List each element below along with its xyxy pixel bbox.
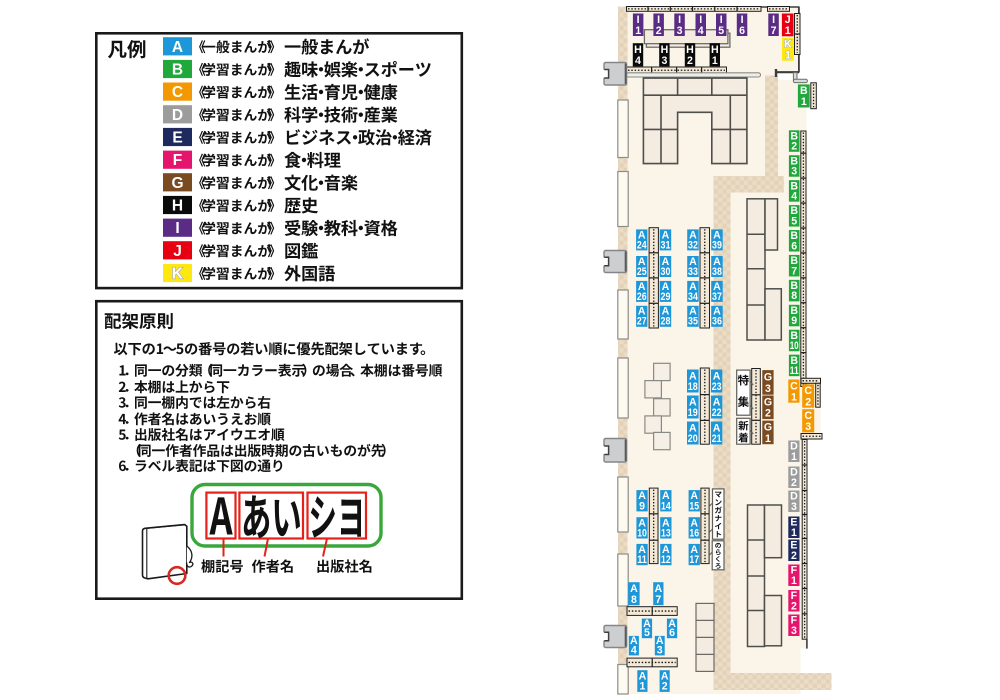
svg-text:36: 36	[712, 316, 722, 328]
svg-text:A: A	[172, 39, 183, 56]
svg-text:21: 21	[712, 433, 722, 445]
svg-text:1: 1	[785, 50, 791, 62]
svg-text:5: 5	[791, 215, 797, 227]
svg-text:4: 4	[635, 55, 641, 67]
svg-text:17: 17	[689, 554, 699, 566]
svg-text:34: 34	[688, 291, 698, 303]
svg-text:2: 2	[791, 477, 797, 489]
svg-text:29: 29	[661, 291, 671, 303]
svg-text:6: 6	[791, 240, 797, 252]
svg-text:30: 30	[661, 266, 671, 278]
svg-text:8: 8	[631, 594, 637, 606]
svg-text:F: F	[173, 152, 182, 169]
svg-text:28: 28	[661, 316, 671, 328]
svg-text:25: 25	[637, 266, 647, 278]
svg-text:1: 1	[785, 25, 791, 37]
svg-text:14: 14	[661, 500, 671, 512]
svg-text:I: I	[175, 220, 179, 237]
svg-text:5: 5	[644, 627, 650, 639]
svg-text:18: 18	[688, 381, 698, 393]
svg-text:B: B	[172, 62, 183, 79]
svg-text:15: 15	[689, 500, 699, 512]
svg-text:K: K	[172, 266, 184, 283]
svg-text:1: 1	[635, 25, 641, 37]
svg-text:11: 11	[790, 365, 799, 377]
svg-text:1: 1	[765, 433, 771, 445]
svg-text:37: 37	[712, 291, 722, 303]
svg-text:6: 6	[669, 627, 675, 639]
svg-text:1: 1	[801, 96, 807, 108]
svg-text:H: H	[172, 198, 183, 215]
svg-text:3: 3	[791, 625, 797, 637]
svg-text:13: 13	[661, 527, 671, 539]
svg-text:2: 2	[791, 600, 797, 612]
svg-text:3: 3	[677, 25, 683, 37]
svg-text:31: 31	[661, 239, 671, 251]
svg-text:10: 10	[790, 340, 799, 352]
svg-text:19: 19	[688, 407, 698, 419]
svg-text:3: 3	[805, 421, 811, 433]
svg-text:11: 11	[637, 554, 647, 566]
svg-text:33: 33	[688, 266, 698, 278]
svg-text:9: 9	[639, 500, 645, 512]
svg-text:1: 1	[791, 527, 797, 539]
svg-text:8: 8	[791, 290, 797, 302]
svg-text:10: 10	[637, 527, 647, 539]
svg-text:G: G	[171, 175, 183, 192]
svg-text:32: 32	[688, 239, 698, 251]
svg-text:3: 3	[791, 166, 797, 178]
svg-text:2: 2	[791, 550, 797, 562]
svg-text:1: 1	[791, 575, 797, 587]
svg-text:G: G	[764, 397, 772, 409]
svg-text:1: 1	[791, 451, 797, 463]
svg-text:1: 1	[791, 391, 797, 403]
svg-text:26: 26	[637, 291, 647, 303]
svg-text:4: 4	[631, 644, 637, 656]
svg-text:6: 6	[739, 25, 745, 37]
svg-text:2: 2	[687, 55, 693, 67]
svg-text:27: 27	[637, 316, 647, 328]
svg-text:38: 38	[712, 266, 722, 278]
svg-text:7: 7	[791, 265, 797, 277]
svg-text:G: G	[764, 372, 772, 384]
svg-text:3: 3	[765, 383, 771, 395]
svg-text:2: 2	[765, 408, 771, 420]
svg-text:4: 4	[791, 191, 797, 203]
svg-text:9: 9	[791, 315, 797, 327]
svg-text:C: C	[172, 84, 183, 101]
svg-text:1: 1	[639, 681, 645, 693]
svg-text:2: 2	[656, 25, 662, 37]
svg-text:23: 23	[712, 381, 722, 393]
svg-text:E: E	[172, 130, 182, 147]
svg-text:39: 39	[712, 239, 722, 251]
svg-text:7: 7	[655, 594, 661, 606]
svg-text:2: 2	[662, 681, 668, 693]
svg-text:3: 3	[661, 55, 667, 67]
svg-text:20: 20	[688, 433, 698, 445]
svg-text:1: 1	[712, 55, 718, 67]
svg-text:12: 12	[661, 554, 671, 566]
svg-text:4: 4	[698, 25, 704, 37]
svg-text:2: 2	[791, 141, 797, 153]
svg-text:7: 7	[771, 25, 777, 37]
svg-text:22: 22	[712, 407, 722, 419]
svg-text:J: J	[173, 243, 182, 260]
svg-text:2: 2	[805, 396, 811, 408]
svg-text:35: 35	[688, 316, 698, 328]
svg-text:16: 16	[689, 527, 699, 539]
svg-text:G: G	[764, 422, 772, 434]
svg-text:D: D	[172, 107, 183, 124]
svg-text:3: 3	[657, 644, 663, 656]
svg-text:5: 5	[718, 25, 724, 37]
svg-text:24: 24	[637, 239, 647, 251]
svg-text:3: 3	[791, 501, 797, 513]
